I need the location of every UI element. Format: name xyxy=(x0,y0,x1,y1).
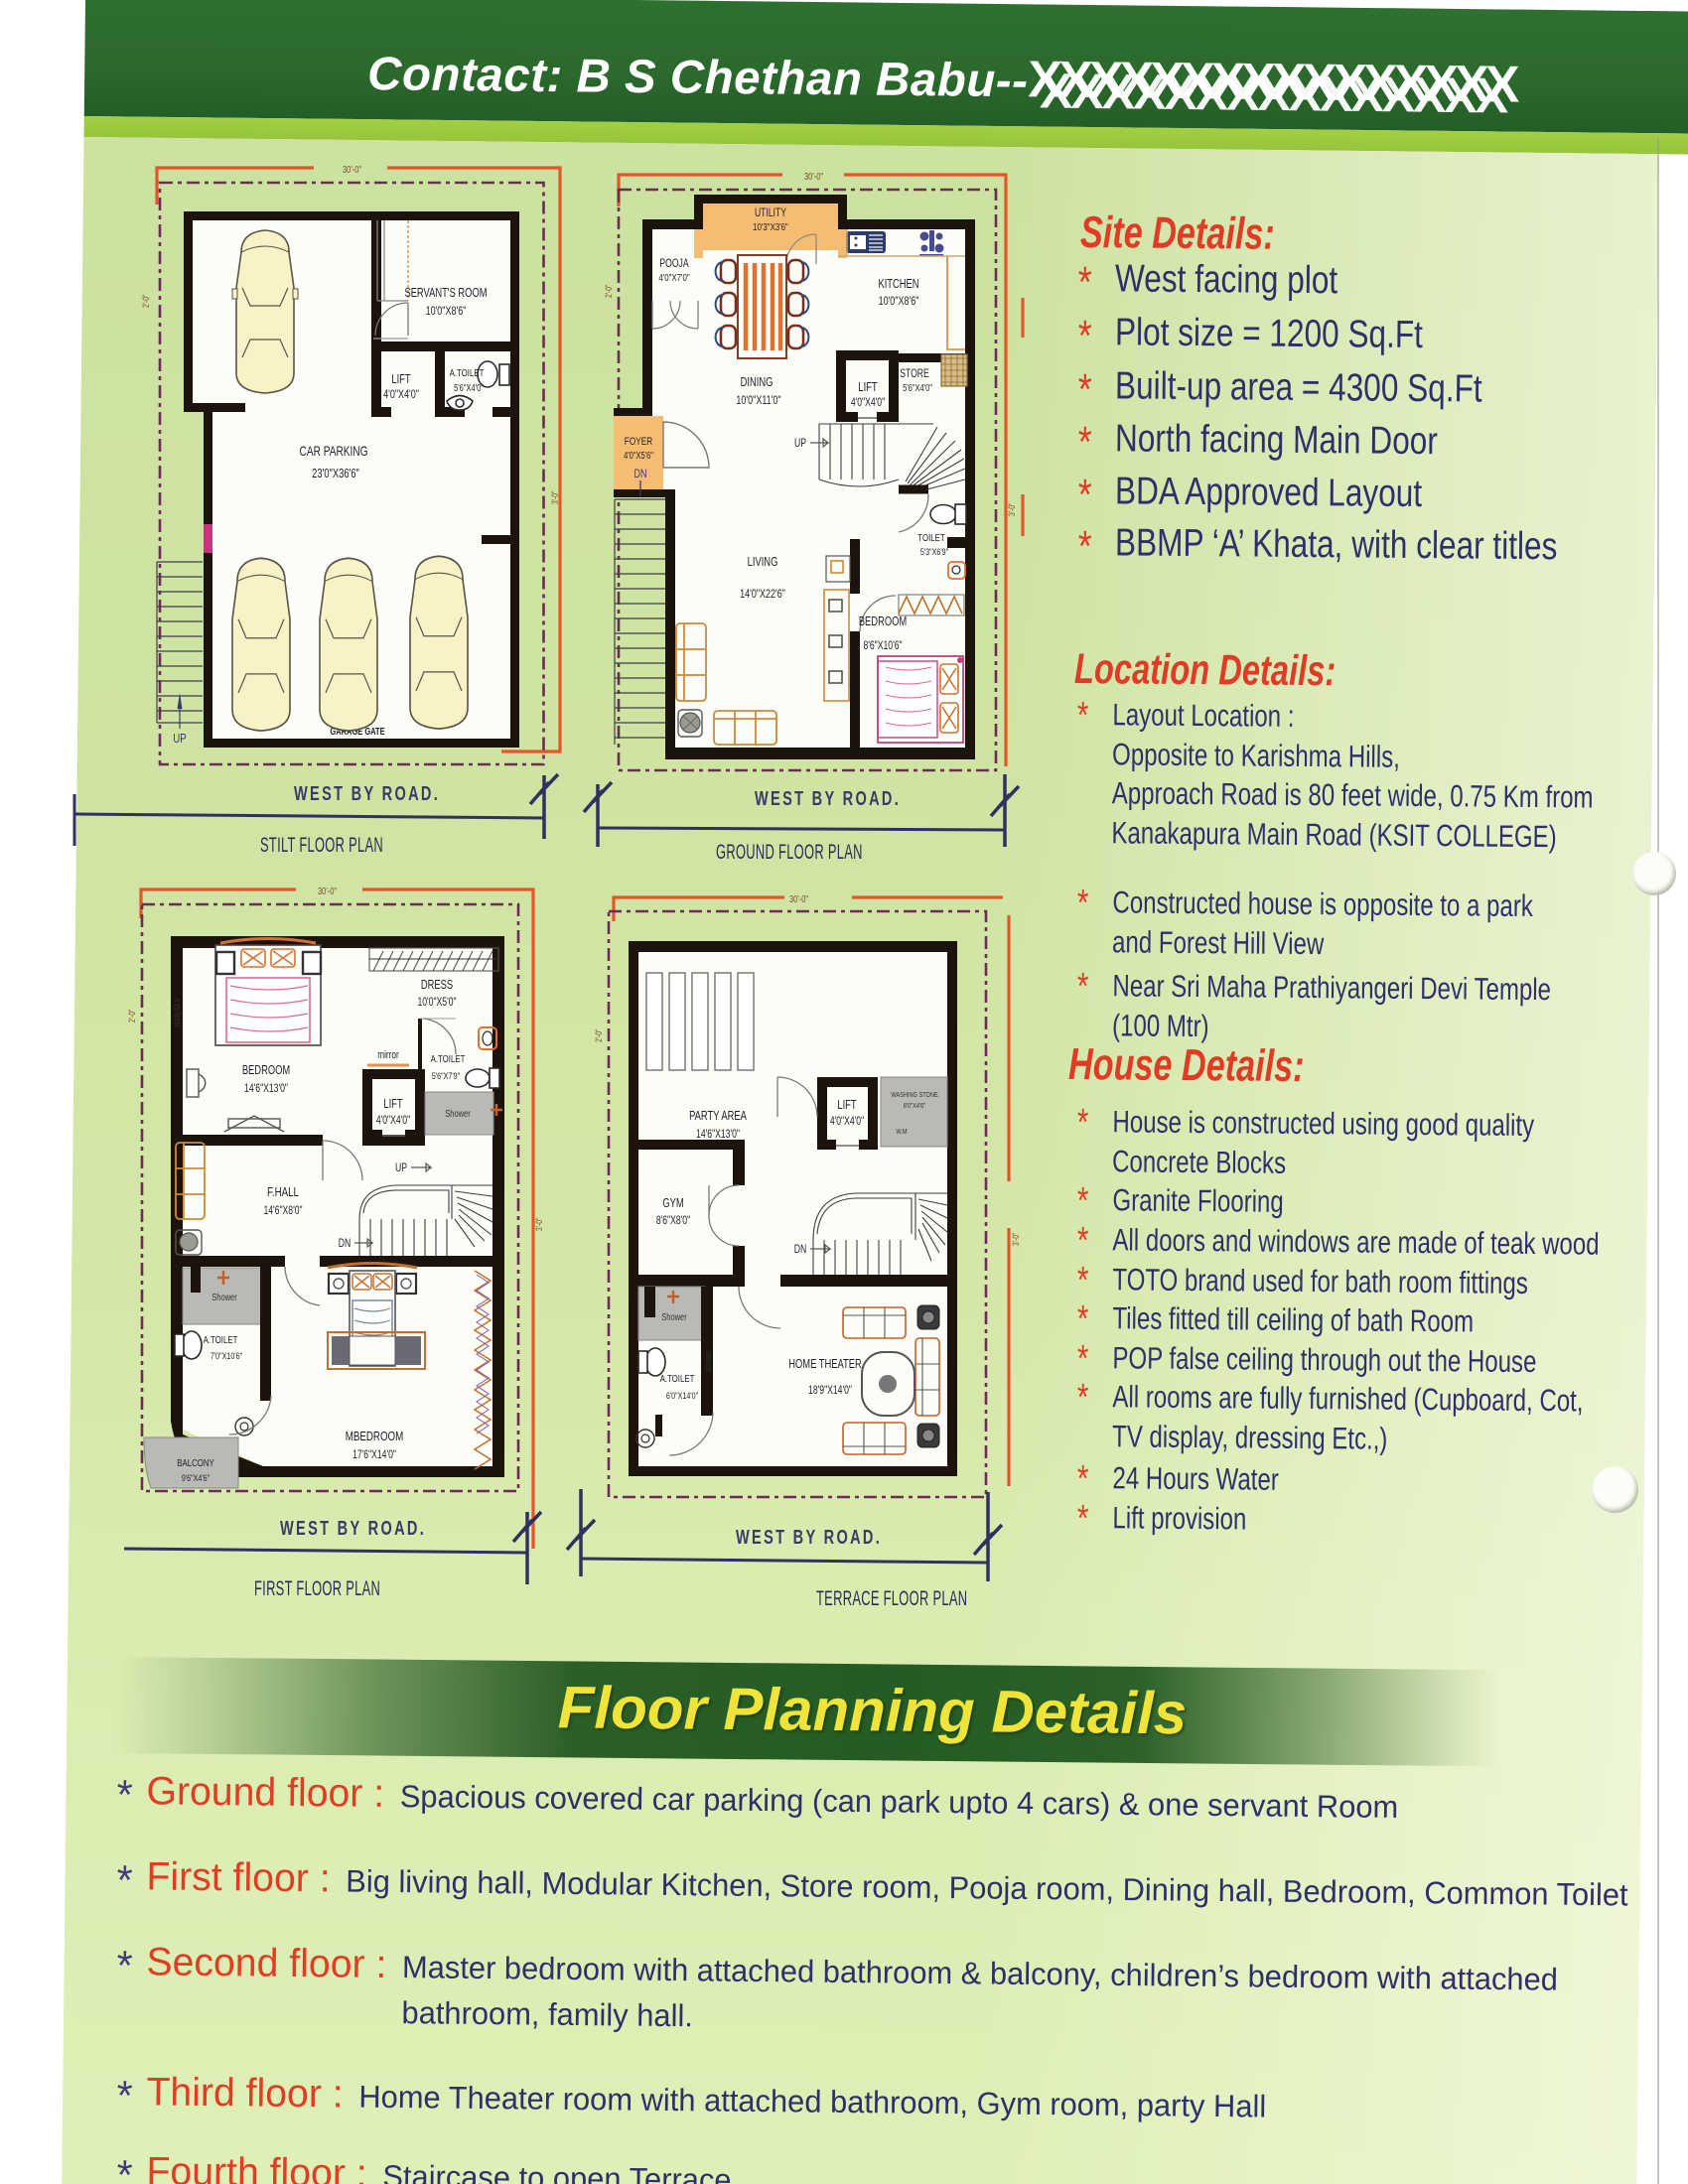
svg-text:4'0"X4'0": 4'0"X4'0" xyxy=(830,1116,865,1128)
svg-text:SERVANT'S ROOM: SERVANT'S ROOM xyxy=(404,287,487,301)
svg-text:UP: UP xyxy=(173,733,187,747)
svg-text:DN: DN xyxy=(339,1238,351,1250)
svg-text:FOYER: FOYER xyxy=(625,436,652,448)
svg-text:23'0"X36'6": 23'0"X36'6" xyxy=(312,468,359,481)
svg-text:study&t.v: study&t.v xyxy=(171,998,182,1027)
svg-text:30'-0": 30'-0" xyxy=(789,893,808,904)
svg-text:DINING: DINING xyxy=(741,376,774,390)
svg-text:3'-0": 3'-0" xyxy=(1007,502,1017,516)
svg-text:TOILET: TOILET xyxy=(917,532,945,543)
svg-text:3'-0": 3'-0" xyxy=(534,1217,544,1231)
svg-text:POOJA: POOJA xyxy=(659,258,688,270)
svg-text:LIFT: LIFT xyxy=(383,1098,402,1112)
svg-text:30'-0": 30'-0" xyxy=(804,171,823,182)
svg-text:BALCONY: BALCONY xyxy=(177,1457,214,1468)
svg-text:10'0"X8'6": 10'0"X8'6" xyxy=(879,295,919,309)
svg-text:LIFT: LIFT xyxy=(837,1099,856,1113)
svg-text:PARTY AREA: PARTY AREA xyxy=(689,1110,747,1124)
svg-text:UP: UP xyxy=(395,1162,407,1174)
svg-text:7'0"X10'6": 7'0"X10'6" xyxy=(211,1350,242,1361)
svg-text:UP: UP xyxy=(794,438,806,450)
svg-text:F.HALL: F.HALL xyxy=(267,1186,299,1200)
svg-text:5'3"X6'9": 5'3"X6'9" xyxy=(920,546,948,557)
svg-text:30'-0": 30'-0" xyxy=(343,164,361,175)
svg-text:Shower: Shower xyxy=(661,1311,686,1322)
svg-text:DN: DN xyxy=(794,1244,806,1256)
svg-text:9'6"X4'6": 9'6"X4'6" xyxy=(182,1472,210,1483)
svg-text:4'0"X4'0": 4'0"X4'0" xyxy=(376,1115,411,1127)
svg-text:HOME THEATER: HOME THEATER xyxy=(788,1358,862,1372)
svg-text:WASHING STONE: WASHING STONE xyxy=(891,1091,938,1099)
svg-text:4'0"X5'6": 4'0"X5'6" xyxy=(624,450,653,461)
svg-text:KITCHEN: KITCHEN xyxy=(878,278,918,292)
svg-text:8'6"X10'6": 8'6"X10'6" xyxy=(863,640,902,652)
svg-text:A.TOILET: A.TOILET xyxy=(660,1373,695,1384)
svg-text:2'-0": 2'-0" xyxy=(141,294,151,308)
svg-text:STORE: STORE xyxy=(900,368,929,380)
svg-text:8'0"X4'6": 8'0"X4'6" xyxy=(904,1102,926,1110)
svg-text:30'-0": 30'-0" xyxy=(318,886,337,896)
svg-text:14'6"X13'0": 14'6"X13'0" xyxy=(696,1129,740,1141)
svg-text:2'-0": 2'-0" xyxy=(604,284,614,298)
svg-text:3'-0": 3'-0" xyxy=(550,490,560,504)
svg-text:screen: screen xyxy=(702,1350,713,1372)
svg-text:DN: DN xyxy=(634,468,647,481)
svg-text:4'0"X7'0": 4'0"X7'0" xyxy=(658,272,689,283)
svg-text:10'0"X8'6": 10'0"X8'6" xyxy=(426,305,467,319)
svg-text:GYM: GYM xyxy=(662,1197,683,1211)
svg-text:17'6"X14'0": 17'6"X14'0" xyxy=(352,1449,396,1461)
svg-text:CAR PARKING: CAR PARKING xyxy=(300,444,368,460)
svg-text:4'0"X4'0": 4'0"X4'0" xyxy=(383,388,419,402)
svg-text:5'6"X4'0": 5'6"X4'0" xyxy=(454,382,484,393)
svg-text:W.M: W.M xyxy=(896,1128,907,1136)
svg-text:10'0"X11'0": 10'0"X11'0" xyxy=(736,394,780,408)
svg-text:mirror: mirror xyxy=(377,1049,399,1061)
svg-text:2'-0": 2'-0" xyxy=(594,1028,604,1042)
svg-text:4'0"X4'0": 4'0"X4'0" xyxy=(851,397,886,409)
svg-text:5'6"X4'0": 5'6"X4'0" xyxy=(903,382,932,393)
svg-text:6'0"X14'0": 6'0"X14'0" xyxy=(666,1390,698,1401)
svg-text:8'6"X8'0": 8'6"X8'0" xyxy=(656,1215,691,1227)
svg-text:14'6"X13'0": 14'6"X13'0" xyxy=(244,1083,288,1095)
svg-text:LIFT: LIFT xyxy=(391,373,410,387)
svg-text:MBEDROOM: MBEDROOM xyxy=(346,1431,403,1444)
svg-text:3'-0": 3'-0" xyxy=(1011,1232,1021,1246)
svg-text:10'0"X5'0": 10'0"X5'0" xyxy=(417,997,456,1009)
svg-text:5'6"X7'9": 5'6"X7'9" xyxy=(432,1070,460,1081)
svg-text:BEDROOM: BEDROOM xyxy=(242,1064,290,1078)
svg-text:A.TOILET: A.TOILET xyxy=(450,367,485,378)
svg-text:A.TOILET: A.TOILET xyxy=(204,1334,238,1345)
svg-text:BEDROOM: BEDROOM xyxy=(859,615,907,629)
svg-text:Shower: Shower xyxy=(211,1292,236,1302)
svg-text:DRESS: DRESS xyxy=(421,979,453,993)
svg-text:LIFT: LIFT xyxy=(858,381,877,395)
svg-text:14'6"X8'0": 14'6"X8'0" xyxy=(263,1205,302,1217)
svg-text:A.TOILET: A.TOILET xyxy=(431,1053,466,1064)
svg-text:Shower: Shower xyxy=(445,1108,470,1119)
svg-text:UTILITY: UTILITY xyxy=(755,207,786,219)
svg-text:10'3"X3'6": 10'3"X3'6" xyxy=(753,221,788,232)
svg-text:2'-0": 2'-0" xyxy=(127,1009,137,1023)
svg-text:LIVING: LIVING xyxy=(748,556,778,570)
svg-text:14'0"X22'6": 14'0"X22'6" xyxy=(740,588,785,602)
svg-text:18'9"X14'0": 18'9"X14'0" xyxy=(808,1385,852,1397)
